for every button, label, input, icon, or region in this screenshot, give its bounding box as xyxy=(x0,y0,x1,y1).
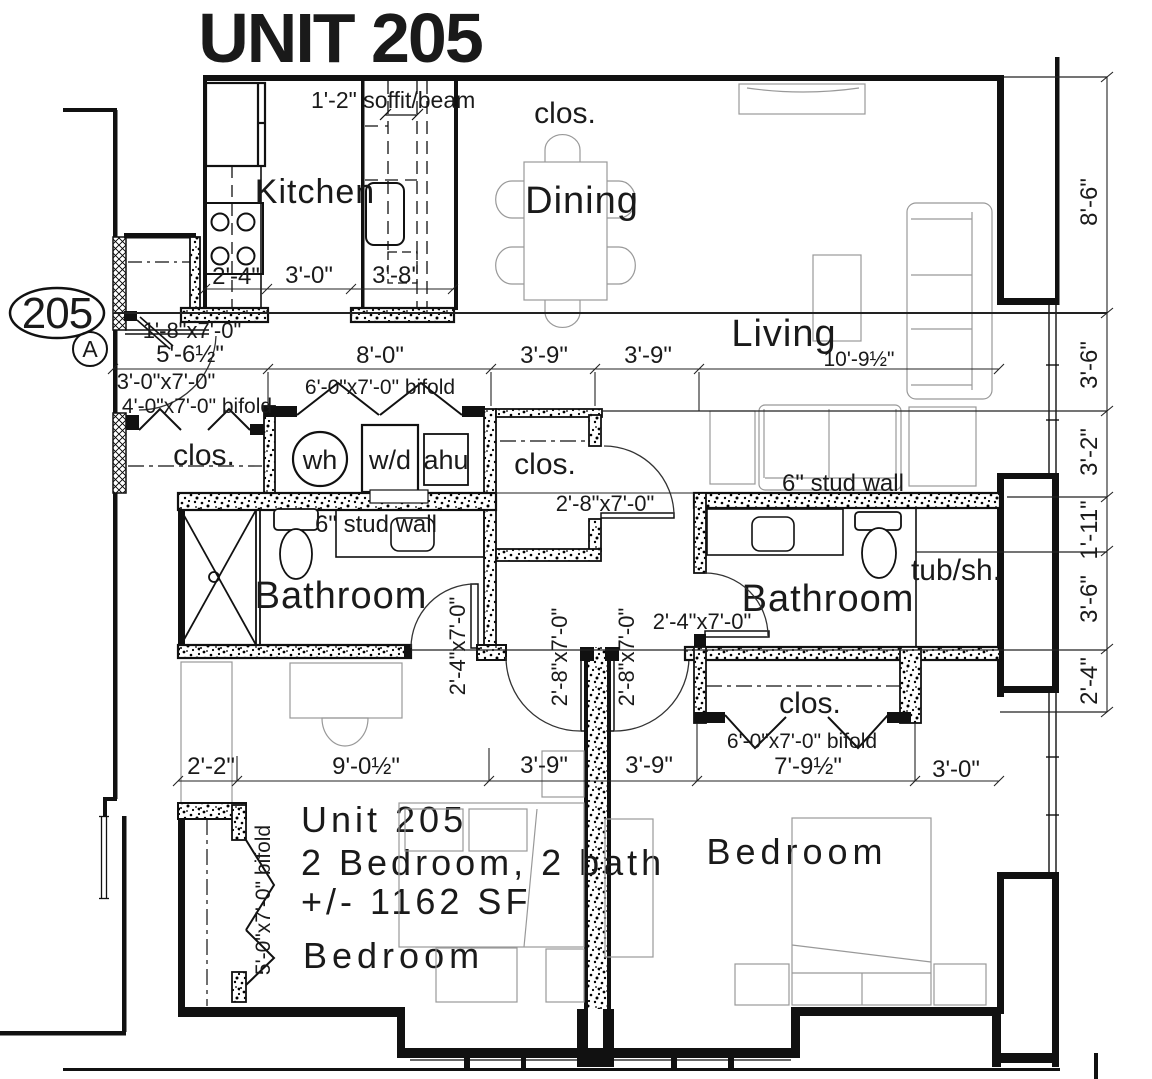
svg-text:ahu: ahu xyxy=(423,445,468,475)
svg-text:205: 205 xyxy=(22,289,92,338)
svg-text:tub/sh.: tub/sh. xyxy=(911,554,1001,587)
svg-text:6'-0"x7'-0" bifold: 6'-0"x7'-0" bifold xyxy=(305,376,455,399)
svg-text:3'-0"x7'-0": 3'-0"x7'-0" xyxy=(117,369,216,394)
svg-text:3'-0": 3'-0" xyxy=(285,262,333,289)
svg-text:6" stud wall: 6" stud wall xyxy=(782,470,904,497)
svg-text:8'-6": 8'-6" xyxy=(1076,178,1103,226)
svg-text:Bathroom: Bathroom xyxy=(255,575,428,617)
svg-text:Unit 205: Unit 205 xyxy=(301,799,467,840)
svg-text:3'-8': 3'-8' xyxy=(372,262,416,289)
svg-text:Kitchen: Kitchen xyxy=(255,173,375,211)
svg-text:9'-0½": 9'-0½" xyxy=(332,753,400,780)
svg-text:4'-0"x7'-0" bifold: 4'-0"x7'-0" bifold xyxy=(122,395,272,418)
svg-text:A: A xyxy=(82,336,98,362)
svg-text:7'-9½": 7'-9½" xyxy=(774,753,842,780)
svg-text:3'-9": 3'-9" xyxy=(624,342,672,369)
svg-text:6'-0"x7'-0" bifold: 6'-0"x7'-0" bifold xyxy=(727,730,877,753)
svg-text:clos.: clos. xyxy=(173,439,235,472)
svg-text:2'-2": 2'-2" xyxy=(187,753,235,780)
svg-text:UNIT 205: UNIT 205 xyxy=(198,0,482,77)
svg-text:3'-9": 3'-9" xyxy=(520,752,568,779)
svg-text:Living: Living xyxy=(731,313,836,355)
svg-text:Bedroom: Bedroom xyxy=(706,831,887,872)
svg-text:6" stud wall: 6" stud wall xyxy=(315,511,437,538)
svg-text:5'-0"x7'-0" bifold: 5'-0"x7'-0" bifold xyxy=(252,825,275,975)
svg-text:1'-2" soffit/beam: 1'-2" soffit/beam xyxy=(311,87,475,113)
svg-text:2 Bedroom, 2 bath: 2 Bedroom, 2 bath xyxy=(301,842,665,883)
svg-text:w/d: w/d xyxy=(368,445,411,475)
svg-text:8'-0": 8'-0" xyxy=(356,342,404,369)
svg-text:1'-11": 1'-11" xyxy=(1076,500,1103,559)
svg-text:3'-6": 3'-6" xyxy=(1076,575,1103,623)
svg-text:2'-4"x7'-0": 2'-4"x7'-0" xyxy=(653,609,752,634)
svg-text:2'-4": 2'-4" xyxy=(212,263,260,290)
svg-text:3'-0": 3'-0" xyxy=(932,756,980,783)
svg-text:3'-6": 3'-6" xyxy=(1076,341,1103,389)
svg-text:2'-4"x7'-0": 2'-4"x7'-0" xyxy=(445,597,470,696)
svg-text:3'-2": 3'-2" xyxy=(1076,428,1103,476)
svg-text:10'-9½": 10'-9½" xyxy=(823,348,894,371)
svg-text:2'-4": 2'-4" xyxy=(1076,657,1103,705)
svg-text:1'-8"x7'-0": 1'-8"x7'-0" xyxy=(143,318,242,343)
svg-text:3'-9": 3'-9" xyxy=(520,342,568,369)
svg-text:clos.: clos. xyxy=(534,97,596,130)
svg-text:clos.: clos. xyxy=(779,687,841,720)
svg-text:Bathroom: Bathroom xyxy=(742,578,915,620)
svg-text:wh: wh xyxy=(302,445,338,475)
svg-text:2'-8"x7'-0": 2'-8"x7'-0" xyxy=(547,608,572,707)
svg-text:3'-9": 3'-9" xyxy=(625,752,673,779)
svg-text:2'-8"x7'-0": 2'-8"x7'-0" xyxy=(556,491,655,516)
svg-text:Dining: Dining xyxy=(525,180,639,222)
svg-text:5'-6½": 5'-6½" xyxy=(156,341,224,368)
svg-text:clos.: clos. xyxy=(514,448,576,481)
svg-text:+/- 1162 SF: +/- 1162 SF xyxy=(301,881,531,922)
svg-text:Bedroom: Bedroom xyxy=(303,935,484,976)
